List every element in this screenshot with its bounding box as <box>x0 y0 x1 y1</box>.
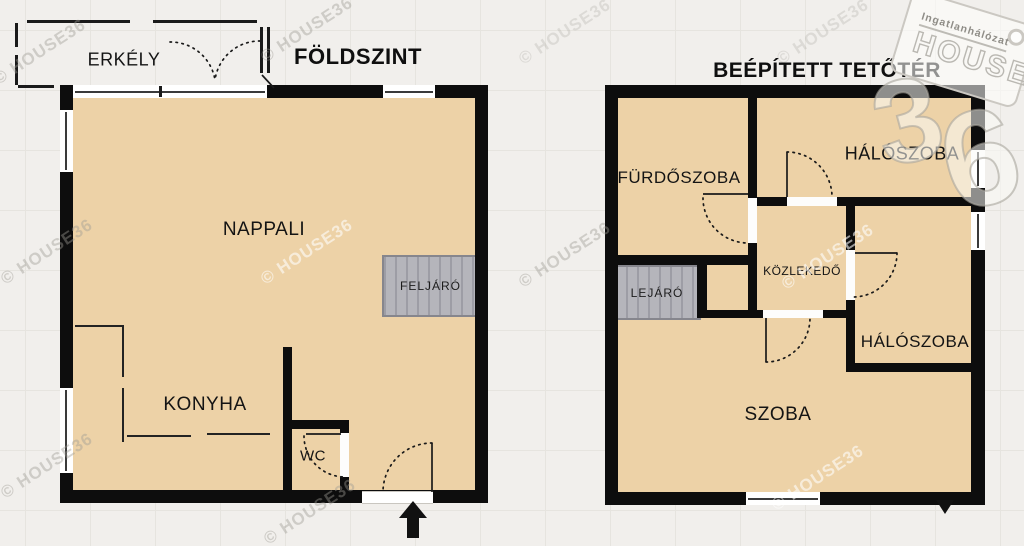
entrance-arrow <box>399 501 427 518</box>
window-line <box>748 498 818 500</box>
room-label-erkely: ERKÉLY <box>88 50 161 71</box>
room-door-opening <box>763 310 823 318</box>
bedroom2-door-opening <box>846 250 855 300</box>
floor-plan-image: FELJÁRÓ ERKÉLY NAPPALI KONYHA WC FÖLDSZI… <box>0 0 1024 546</box>
room-label-feljaro: FELJÁRÓ <box>400 279 461 293</box>
kitchen-divider-line <box>207 433 270 435</box>
window-line <box>385 91 433 93</box>
wall <box>846 363 971 372</box>
window-line <box>977 152 979 186</box>
window <box>746 492 820 505</box>
balcony-railing <box>15 55 18 85</box>
wall <box>605 85 618 505</box>
balcony-door-arc-right <box>215 41 260 80</box>
window <box>60 110 73 172</box>
wall <box>697 255 707 318</box>
balcony-railing <box>15 23 18 47</box>
balcony-railing <box>18 85 54 88</box>
balcony-door-arc-left <box>170 42 215 80</box>
kitchen-divider-line <box>122 388 124 442</box>
balcony-door-opening <box>73 85 267 98</box>
wall <box>475 85 488 503</box>
entrance-arrow-stem <box>407 517 419 538</box>
tag-hole-icon <box>1006 27 1024 48</box>
balcony-door-jamb <box>267 27 270 73</box>
room-label-szoba: SZOBA <box>745 404 812 426</box>
wall <box>837 197 971 206</box>
room-label-lejaro: LEJÁRÓ <box>631 286 684 300</box>
window-tick <box>159 86 162 97</box>
watermark: © HOUSE36 <box>0 15 90 89</box>
room-label-konyha: KONYHA <box>163 394 246 416</box>
bathroom-door-opening <box>748 198 757 243</box>
ground-floor-title: FÖLDSZINT <box>294 44 422 70</box>
room-label-nappali: NAPPALI <box>223 219 305 241</box>
room-label-wc: WC <box>300 448 326 465</box>
wall <box>605 85 985 98</box>
attic-title: BEÉPÍTETT TETŐTÉR <box>713 59 941 83</box>
window <box>971 150 985 188</box>
window <box>383 85 435 98</box>
logo-corner-mark <box>936 500 954 514</box>
window-line <box>65 112 67 170</box>
wall <box>846 300 855 372</box>
balcony-door-jamb <box>260 27 263 73</box>
wall <box>340 420 349 433</box>
logo-network-text: Ingatlanhálózat <box>919 10 1011 52</box>
kitchen-divider-line <box>127 435 191 437</box>
kitchen-divider-line <box>75 325 123 327</box>
balcony-railing <box>153 20 257 23</box>
watermark: © HOUSE36 <box>515 218 614 292</box>
wc-door-opening <box>340 433 349 477</box>
bedroom1-door-opening <box>787 197 837 206</box>
wall <box>971 85 985 505</box>
room-label-furdoszoba: FÜRDŐSZOBA <box>617 168 740 188</box>
window-line <box>977 214 979 248</box>
watermark: © HOUSE36 <box>515 0 614 69</box>
wall <box>748 98 757 198</box>
window-line <box>75 91 265 93</box>
wall <box>340 477 349 493</box>
room-label-haloszoba-2: HÁLÓSZOBA <box>861 332 969 352</box>
stairs-down: LEJÁRÓ <box>613 265 701 320</box>
window-line <box>65 390 67 471</box>
room-label-haloszoba-1: HÁLÓSZOBA <box>845 144 960 165</box>
wall <box>605 255 753 265</box>
room-label-kozlekedo: KÖZLEKEDŐ <box>763 264 841 278</box>
balcony-railing <box>27 20 130 23</box>
stairs-up: FELJÁRÓ <box>382 255 479 317</box>
wall <box>697 310 763 318</box>
window <box>971 212 985 250</box>
window <box>60 388 73 473</box>
wall <box>846 206 855 250</box>
kitchen-divider-line <box>122 325 124 377</box>
